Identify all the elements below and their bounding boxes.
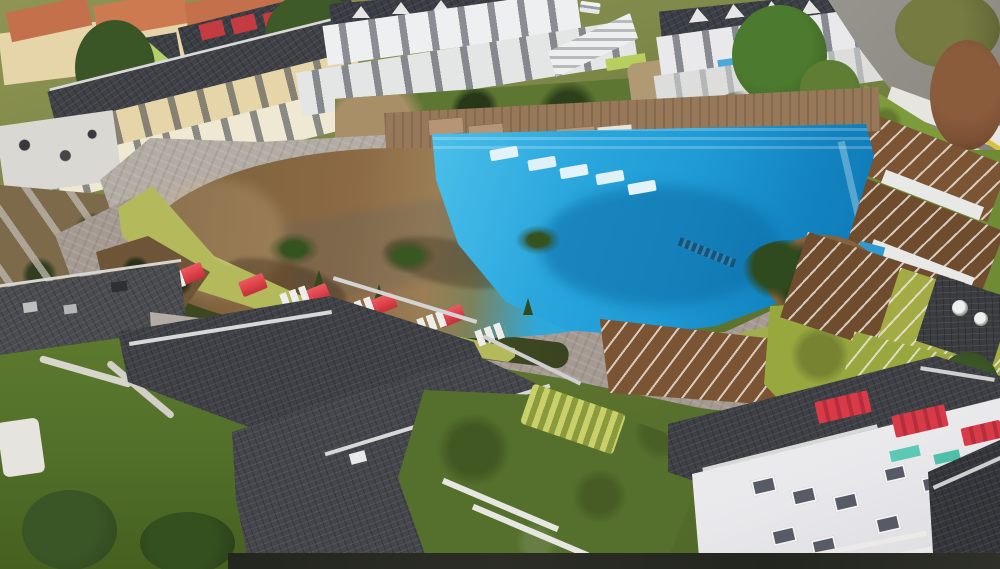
- in-pool-lounger: [595, 170, 624, 186]
- roof-vent: [111, 281, 128, 293]
- satellite-dish: [952, 300, 968, 316]
- villa-window: [883, 464, 908, 484]
- villa-window: [771, 526, 798, 547]
- white-railing: [442, 478, 559, 532]
- young-palm: [268, 232, 320, 266]
- rust-tree: [930, 40, 1000, 150]
- tree: [140, 512, 235, 569]
- satellite-dish: [974, 312, 988, 326]
- in-pool-lounger: [527, 156, 556, 172]
- white-garden-wall: [0, 417, 46, 477]
- white-railing: [472, 504, 589, 558]
- pool-deep-patch: [540, 186, 780, 306]
- aerial-resort-photo: [0, 0, 1000, 569]
- tree: [22, 490, 117, 569]
- young-palm: [515, 225, 561, 255]
- white-car: [579, 1, 600, 15]
- in-pool-lounger: [559, 164, 588, 180]
- teal-trim: [889, 445, 921, 462]
- ac-unit: [23, 301, 38, 313]
- young-palm: [380, 238, 436, 274]
- villa-window: [833, 492, 860, 513]
- shadow-band-bottom: [228, 553, 1000, 569]
- villa-window: [791, 486, 818, 507]
- villa-window: [751, 476, 778, 497]
- ac-unit: [63, 304, 77, 315]
- villa-window: [875, 514, 902, 535]
